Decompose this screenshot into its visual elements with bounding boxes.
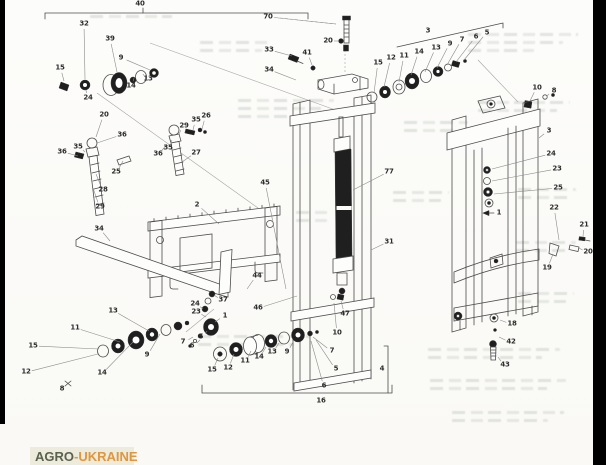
part-label-10: 10	[532, 85, 541, 92]
part-label-5: 5	[485, 30, 490, 37]
part-label-7: 7	[460, 37, 465, 44]
part-label-11: 11	[399, 53, 408, 60]
scan-black-bar-right	[593, 0, 606, 465]
part-label-13: 13	[143, 76, 152, 83]
part-label-25: 25	[553, 185, 562, 192]
part-label-13: 13	[431, 45, 440, 52]
part-label-77: 77	[384, 169, 393, 176]
part-label-9: 9	[285, 349, 290, 356]
part-label-39: 39	[105, 36, 114, 43]
leader-lines	[32, 18, 584, 382]
watermark-text-secondary: -UKRAINE	[74, 449, 138, 464]
part-label-70: 70	[263, 14, 272, 21]
part-label-13: 13	[108, 308, 117, 315]
part-label-1: 1	[497, 210, 502, 217]
part-label-10: 10	[332, 330, 341, 337]
part-label-20: 20	[323, 38, 332, 45]
part-label-11: 11	[70, 325, 79, 332]
part-label-27: 27	[191, 150, 200, 157]
part-label-35: 35	[191, 117, 200, 124]
part-label-34: 34	[264, 67, 273, 74]
part-label-31: 31	[384, 239, 393, 246]
part-label-34: 34	[94, 226, 103, 233]
part-label-14: 14	[97, 370, 106, 377]
part-label-12: 12	[386, 55, 395, 62]
part-label-24: 24	[190, 301, 199, 308]
part-label-46: 46	[253, 305, 262, 312]
part-label-20: 20	[583, 249, 592, 256]
part-label-8: 8	[60, 386, 65, 393]
agro-ukraine-watermark: AGRO-UKRAINE	[30, 447, 134, 465]
part-label-6: 6	[190, 343, 195, 350]
part-label-33: 33	[264, 47, 273, 54]
part-label-28: 28	[98, 187, 107, 194]
part-label-7: 7	[330, 348, 335, 355]
part-label-8: 8	[552, 88, 557, 95]
scanned-diagram-page: 4070323991314152420363536252829342635293…	[0, 0, 606, 465]
part-label-15: 15	[373, 60, 382, 67]
part-label-36: 36	[57, 149, 66, 156]
part-label-5: 5	[334, 366, 339, 373]
part-label-15: 15	[28, 343, 37, 350]
part-label-14: 14	[414, 49, 423, 56]
part-label-36: 36	[117, 132, 126, 139]
part-label-2: 2	[195, 202, 200, 209]
scan-black-bar-left	[0, 0, 5, 424]
part-label-21: 21	[579, 222, 588, 229]
part-label-35: 35	[73, 144, 82, 151]
part-label-42: 42	[506, 339, 515, 346]
part-label-43: 43	[500, 362, 509, 369]
part-label-6: 6	[474, 34, 479, 41]
part-label-18: 18	[507, 321, 516, 328]
part-label-4: 4	[380, 366, 385, 373]
part-label-11: 11	[240, 358, 249, 365]
part-label-20: 20	[99, 112, 108, 119]
part-label-13: 13	[267, 349, 276, 356]
part-label-1: 1	[223, 313, 228, 320]
part-label-26: 26	[201, 113, 210, 120]
part-label-45: 45	[260, 180, 269, 187]
part-label-40: 40	[135, 1, 144, 8]
part-label-3: 3	[426, 28, 431, 35]
part-label-23: 23	[552, 166, 561, 173]
part-label-14: 14	[254, 354, 263, 361]
part-label-44: 44	[252, 273, 261, 280]
part-label-12: 12	[223, 365, 232, 372]
part-label-16: 16	[316, 398, 325, 405]
part-label-9: 9	[119, 55, 124, 62]
part-label-47: 47	[340, 311, 349, 318]
part-label-32: 32	[79, 21, 88, 28]
part-label-22: 22	[549, 205, 558, 212]
part-label-3: 3	[547, 128, 552, 135]
part-label-23: 23	[191, 309, 200, 316]
part-label-37: 37	[218, 297, 227, 304]
part-label-29: 29	[179, 123, 188, 130]
part-label-15: 15	[55, 65, 64, 72]
part-label-41: 41	[302, 50, 311, 57]
part-label-29: 29	[95, 204, 104, 211]
watermark-text-primary: AGRO	[35, 449, 74, 464]
part-label-24: 24	[546, 151, 555, 158]
part-label-19: 19	[542, 265, 551, 272]
part-label-9: 9	[448, 41, 453, 48]
part-label-7: 7	[181, 339, 186, 346]
part-label-36: 36	[153, 151, 162, 158]
part-label-9: 9	[145, 352, 150, 359]
part-label-6: 6	[322, 383, 327, 390]
part-label-24: 24	[83, 95, 92, 102]
part-label-15: 15	[207, 367, 216, 374]
part-label-12: 12	[21, 369, 30, 376]
part-label-14: 14	[126, 83, 135, 90]
part-label-25: 25	[111, 169, 120, 176]
part-label-35: 35	[163, 145, 172, 152]
part-label-5: 5	[199, 334, 204, 341]
